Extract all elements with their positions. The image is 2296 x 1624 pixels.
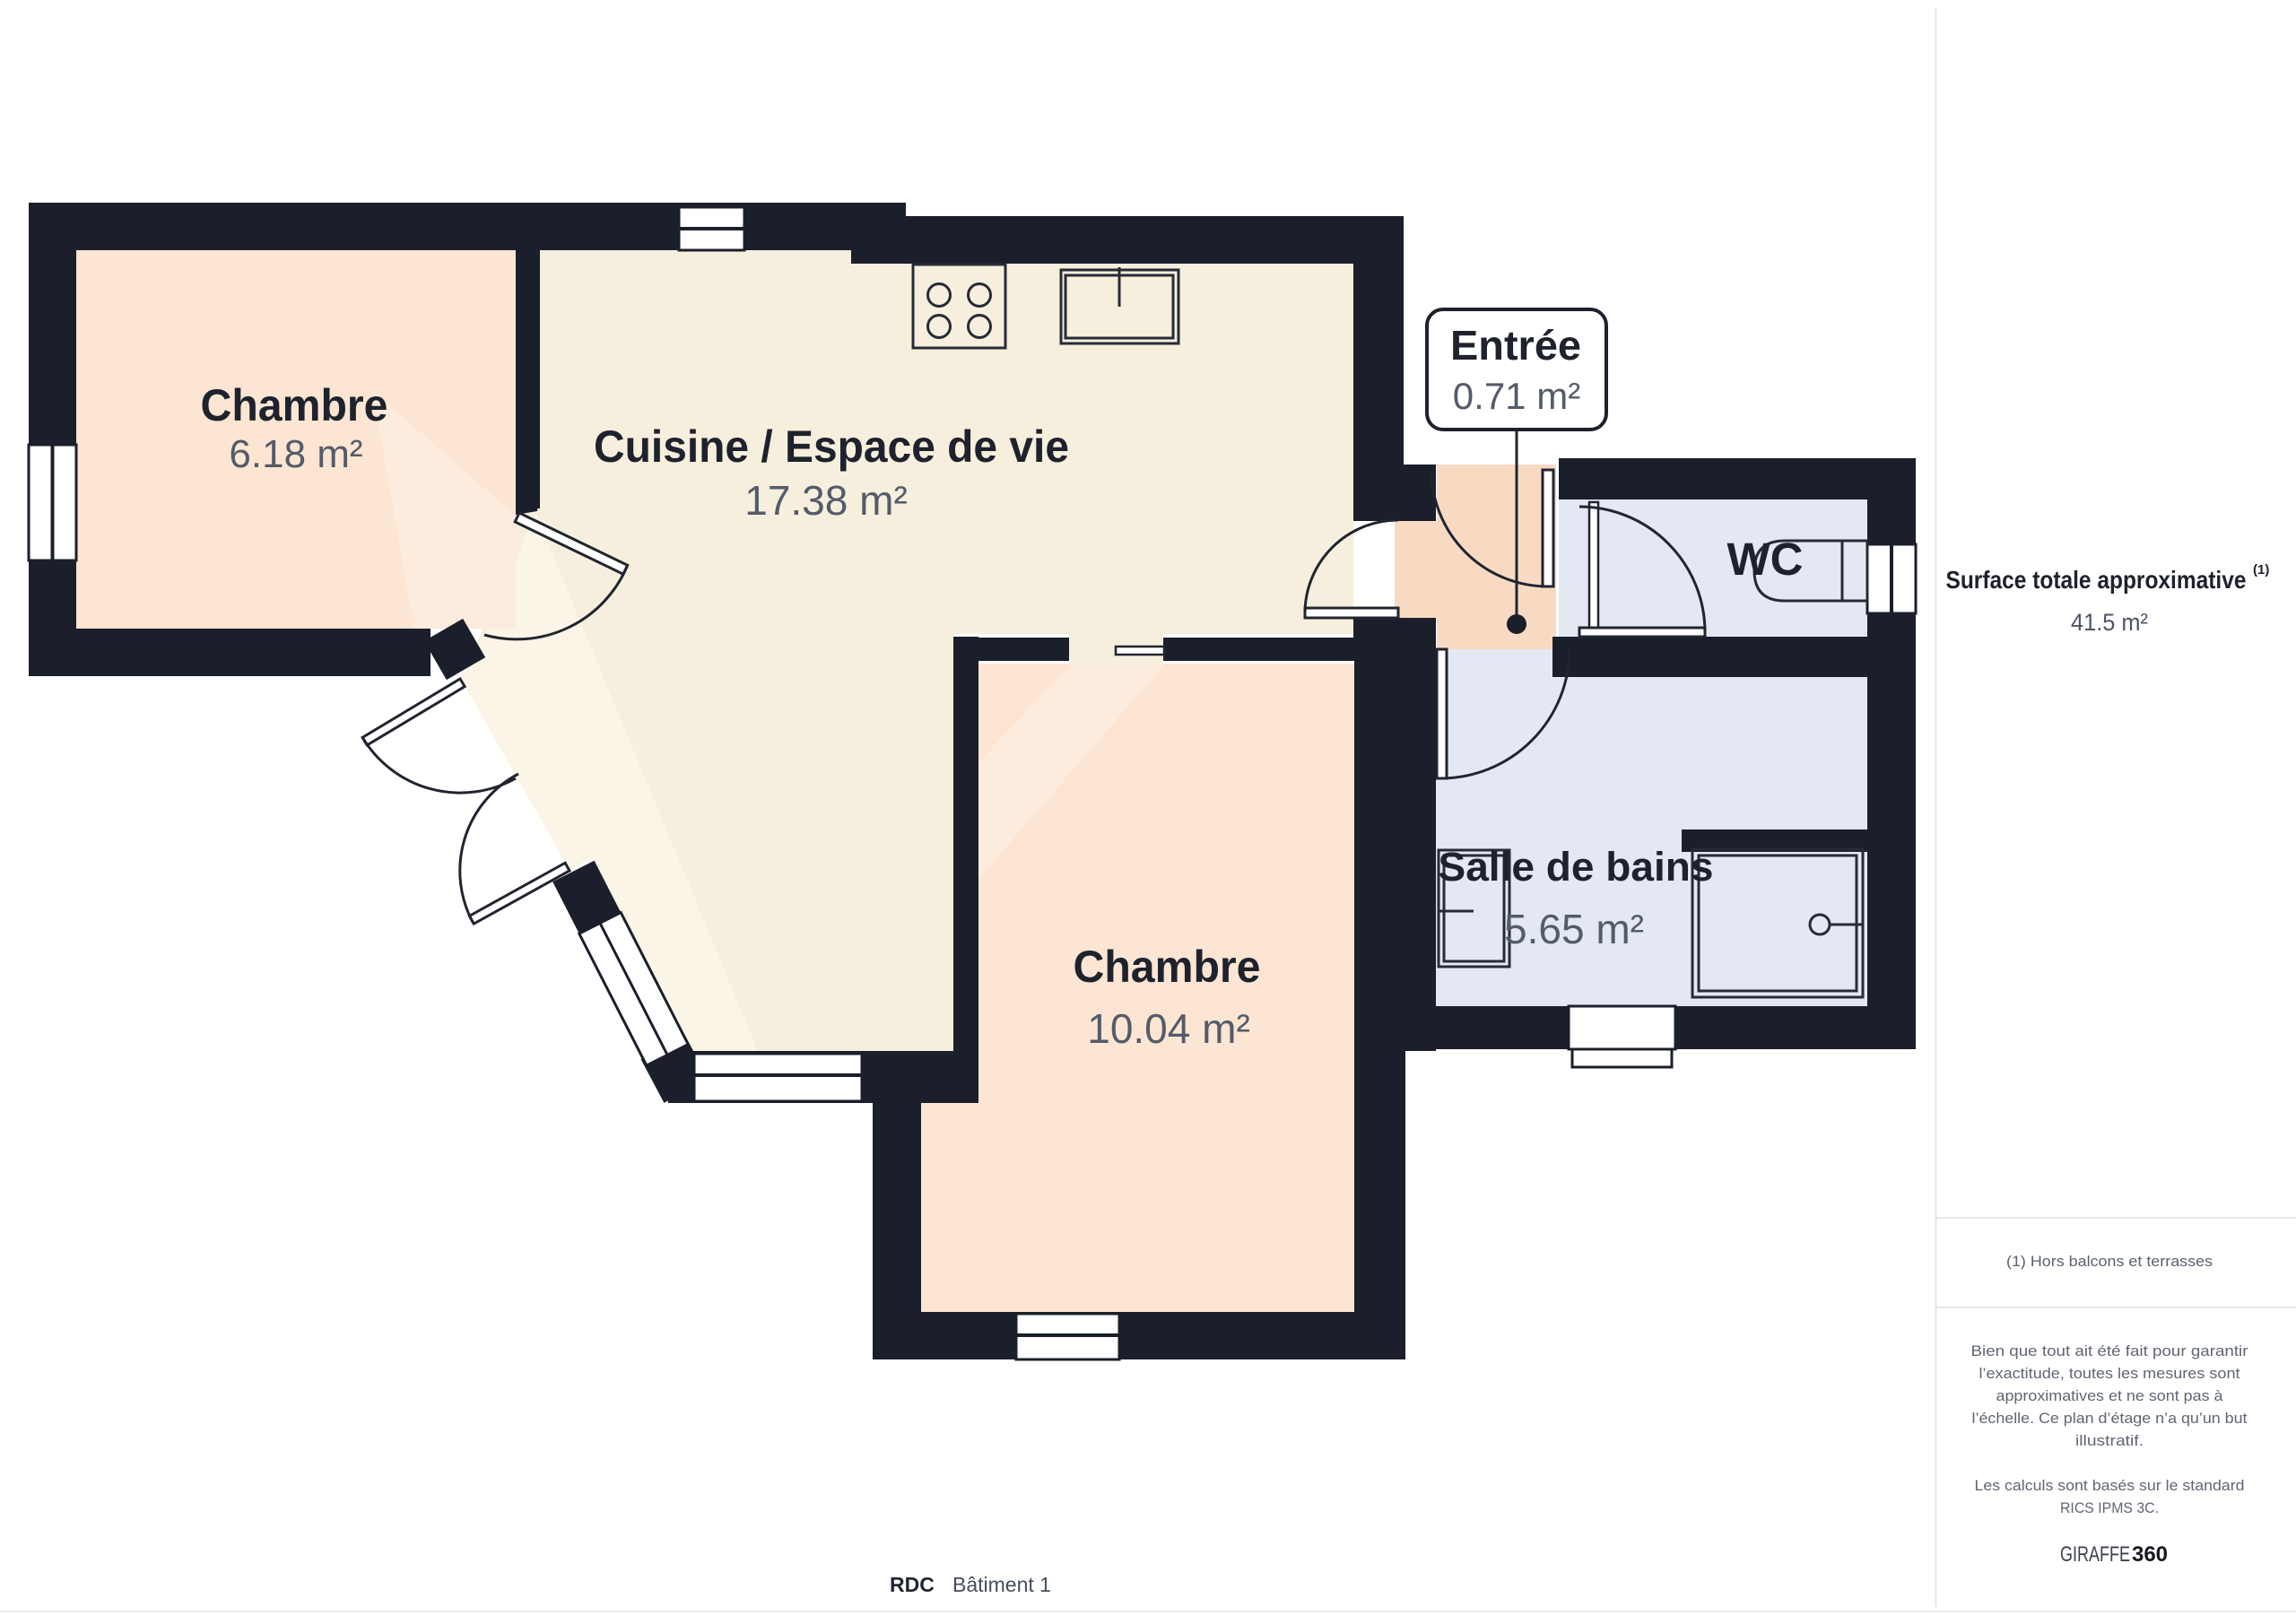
svg-text:10.04 m²: 10.04 m²: [1087, 1005, 1250, 1052]
svg-text:l’échelle. Ce plan d’étage n’a: l’échelle. Ce plan d’étage n’a qu’un but: [1972, 1410, 2248, 1427]
svg-text:Bien que tout ait été fait pou: Bien que tout ait été fait pour garantir: [1971, 1342, 2248, 1359]
svg-text:RICS IPMS 3C.: RICS IPMS 3C.: [2060, 1499, 2159, 1516]
svg-text:(1) Hors balcons et terrasses: (1) Hors balcons et terrasses: [2006, 1253, 2213, 1270]
svg-text:Bâtiment 1: Bâtiment 1: [952, 1573, 1051, 1596]
svg-text:l’exactitude, toutes les mesur: l’exactitude, toutes les mesures sont: [1979, 1365, 2240, 1382]
svg-text:RDC: RDC: [890, 1573, 935, 1596]
svg-text:Chambre: Chambre: [201, 380, 388, 430]
svg-text:Les calculs sont basés sur le: Les calculs sont basés sur le standard: [1975, 1477, 2245, 1494]
svg-text:approximatives et ne sont pas: approximatives et ne sont pas à: [1996, 1387, 2224, 1404]
svg-text:0.71 m²: 0.71 m²: [1453, 375, 1580, 417]
svg-text:Salle de bains: Salle de bains: [1439, 844, 1714, 890]
svg-text:Surface totale approximative: Surface totale approximative: [1946, 566, 2247, 594]
svg-text:GIRAFFE: GIRAFFE: [2060, 1542, 2130, 1567]
svg-text:WC: WC: [1727, 534, 1804, 585]
svg-text:17.38 m²: 17.38 m²: [744, 477, 908, 524]
svg-text:Chambre: Chambre: [1074, 942, 1261, 992]
svg-text:360: 360: [2132, 1542, 2168, 1567]
svg-text:Entrée: Entrée: [1450, 322, 1581, 369]
svg-text:6.18 m²: 6.18 m²: [229, 432, 362, 476]
svg-text:(1): (1): [2253, 562, 2269, 578]
svg-text:illustratif.: illustratif.: [2075, 1432, 2144, 1449]
svg-text:41.5 m²: 41.5 m²: [2071, 609, 2148, 636]
svg-text:5.65 m²: 5.65 m²: [1504, 906, 1644, 952]
svg-text:Cuisine / Espace de vie: Cuisine / Espace de vie: [594, 421, 1069, 472]
